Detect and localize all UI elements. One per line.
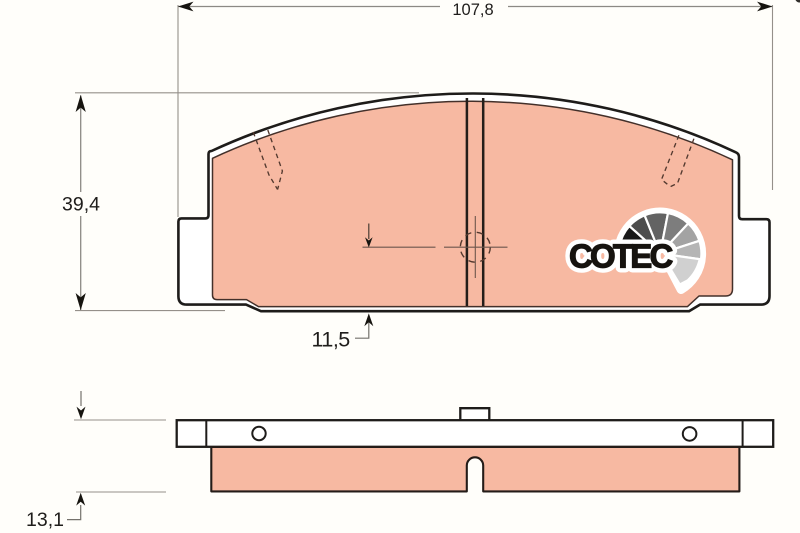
svg-text:39,4: 39,4: [62, 194, 100, 216]
svg-text:107,8: 107,8: [452, 1, 493, 19]
svg-text:11,5: 11,5: [312, 328, 351, 352]
svg-text:COTEC: COTEC: [569, 238, 672, 275]
svg-text:13,1: 13,1: [26, 509, 64, 531]
